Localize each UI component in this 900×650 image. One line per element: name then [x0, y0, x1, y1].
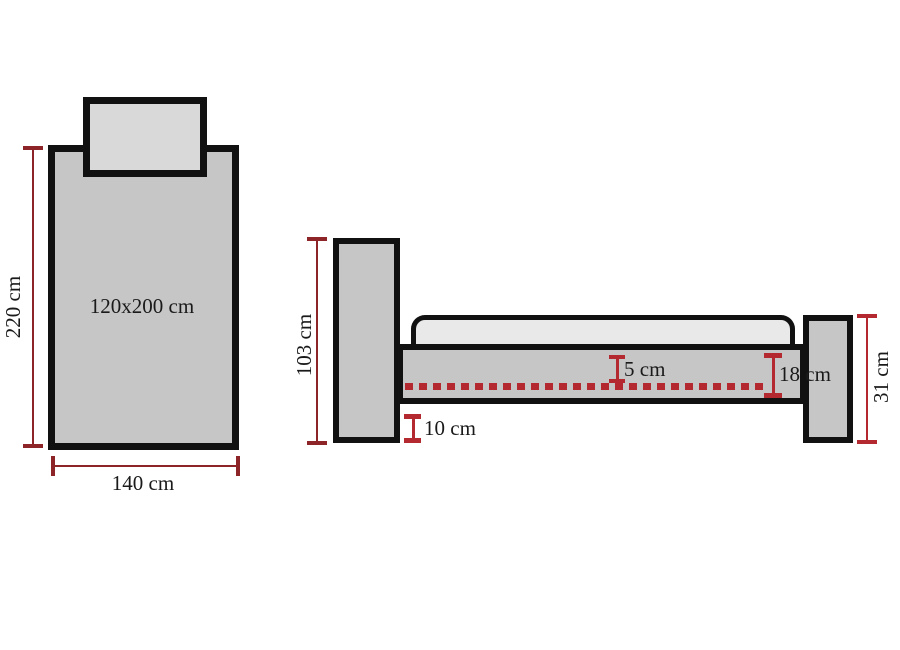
- headboard-outline: [333, 238, 400, 443]
- dimension-31-line: [866, 316, 868, 442]
- slat-dashed-line: [405, 383, 769, 390]
- dimension-5-cap-bottom: [609, 379, 625, 383]
- dimension-220-line: [32, 148, 34, 444]
- dimension-31-cap-top: [857, 314, 877, 318]
- pillow-outline: [83, 97, 207, 177]
- dimension-18-cap-bottom: [764, 393, 782, 398]
- dimension-10-cap-top: [404, 414, 421, 419]
- bed-surface-size-label: 120x200 cm: [57, 295, 227, 317]
- dimension-5-line: [616, 357, 619, 381]
- bed-frame-rail: [397, 344, 806, 404]
- mattress-inset-label: 5 cm: [624, 358, 665, 380]
- dimension-140-cap-right: [236, 456, 240, 476]
- frame-height-label: 18 cm: [779, 363, 831, 385]
- bed-length-label: 220 cm: [2, 262, 24, 352]
- dimension-140-cap-left: [51, 456, 55, 476]
- dimension-18-cap-top: [764, 353, 782, 358]
- dimension-220-cap-top: [23, 146, 43, 150]
- bed-dimension-diagram: 120x200 cm 220 cm 140 cm 103 cm 5 cm 18 …: [0, 0, 900, 650]
- headboard-height-label: 103 cm: [293, 300, 315, 390]
- dimension-10-cap-bottom: [404, 438, 421, 443]
- dimension-220-cap-bottom: [23, 444, 43, 448]
- floor-clearance-label: 10 cm: [424, 417, 476, 439]
- dimension-103-cap-top: [307, 237, 327, 241]
- dimension-5-cap-top: [609, 355, 625, 359]
- footboard-height-label: 31 cm: [870, 332, 892, 422]
- dimension-103-cap-bottom: [307, 441, 327, 445]
- dimension-140-line: [52, 465, 239, 467]
- dimension-18-line: [772, 356, 775, 395]
- dimension-31-cap-bottom: [857, 440, 877, 444]
- dimension-103-line: [316, 239, 318, 442]
- bed-width-label: 140 cm: [73, 472, 213, 494]
